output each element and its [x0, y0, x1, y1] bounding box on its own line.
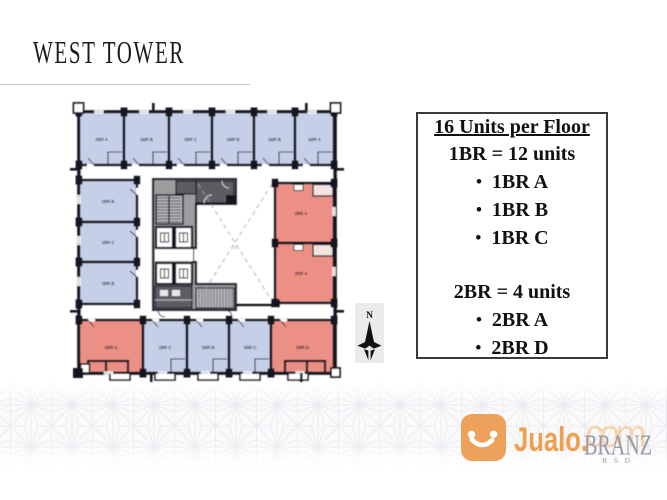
- svg-text:1BR C: 1BR C: [102, 240, 115, 245]
- svg-text:Jualo.: Jualo.: [514, 421, 588, 459]
- svg-text:1BR B: 1BR B: [140, 137, 153, 142]
- svg-text:1BR B: 1BR B: [202, 345, 215, 350]
- svg-text:BSD: BSD: [602, 456, 636, 465]
- svg-text:1BR A: 1BR A: [308, 137, 321, 142]
- svg-text:2BR D: 2BR D: [296, 345, 309, 350]
- svg-text:2BR A: 2BR A: [295, 211, 308, 216]
- svg-text:2BR A: 2BR A: [105, 345, 118, 350]
- svg-text:1BR B: 1BR B: [102, 281, 115, 286]
- svg-text:1BR C: 1BR C: [244, 345, 257, 350]
- svg-text:2BR A: 2BR A: [295, 271, 308, 276]
- svg-text:1BR B: 1BR B: [268, 137, 281, 142]
- svg-text:1BR C: 1BR C: [184, 137, 197, 142]
- svg-text:1BR C: 1BR C: [159, 345, 172, 350]
- svg-text:N: N: [366, 311, 373, 321]
- svg-text:1BR A: 1BR A: [95, 137, 108, 142]
- svg-text:⤬: ⤬: [233, 245, 237, 251]
- svg-text:1BR B: 1BR B: [227, 137, 240, 142]
- svg-text:1BR B: 1BR B: [102, 199, 115, 204]
